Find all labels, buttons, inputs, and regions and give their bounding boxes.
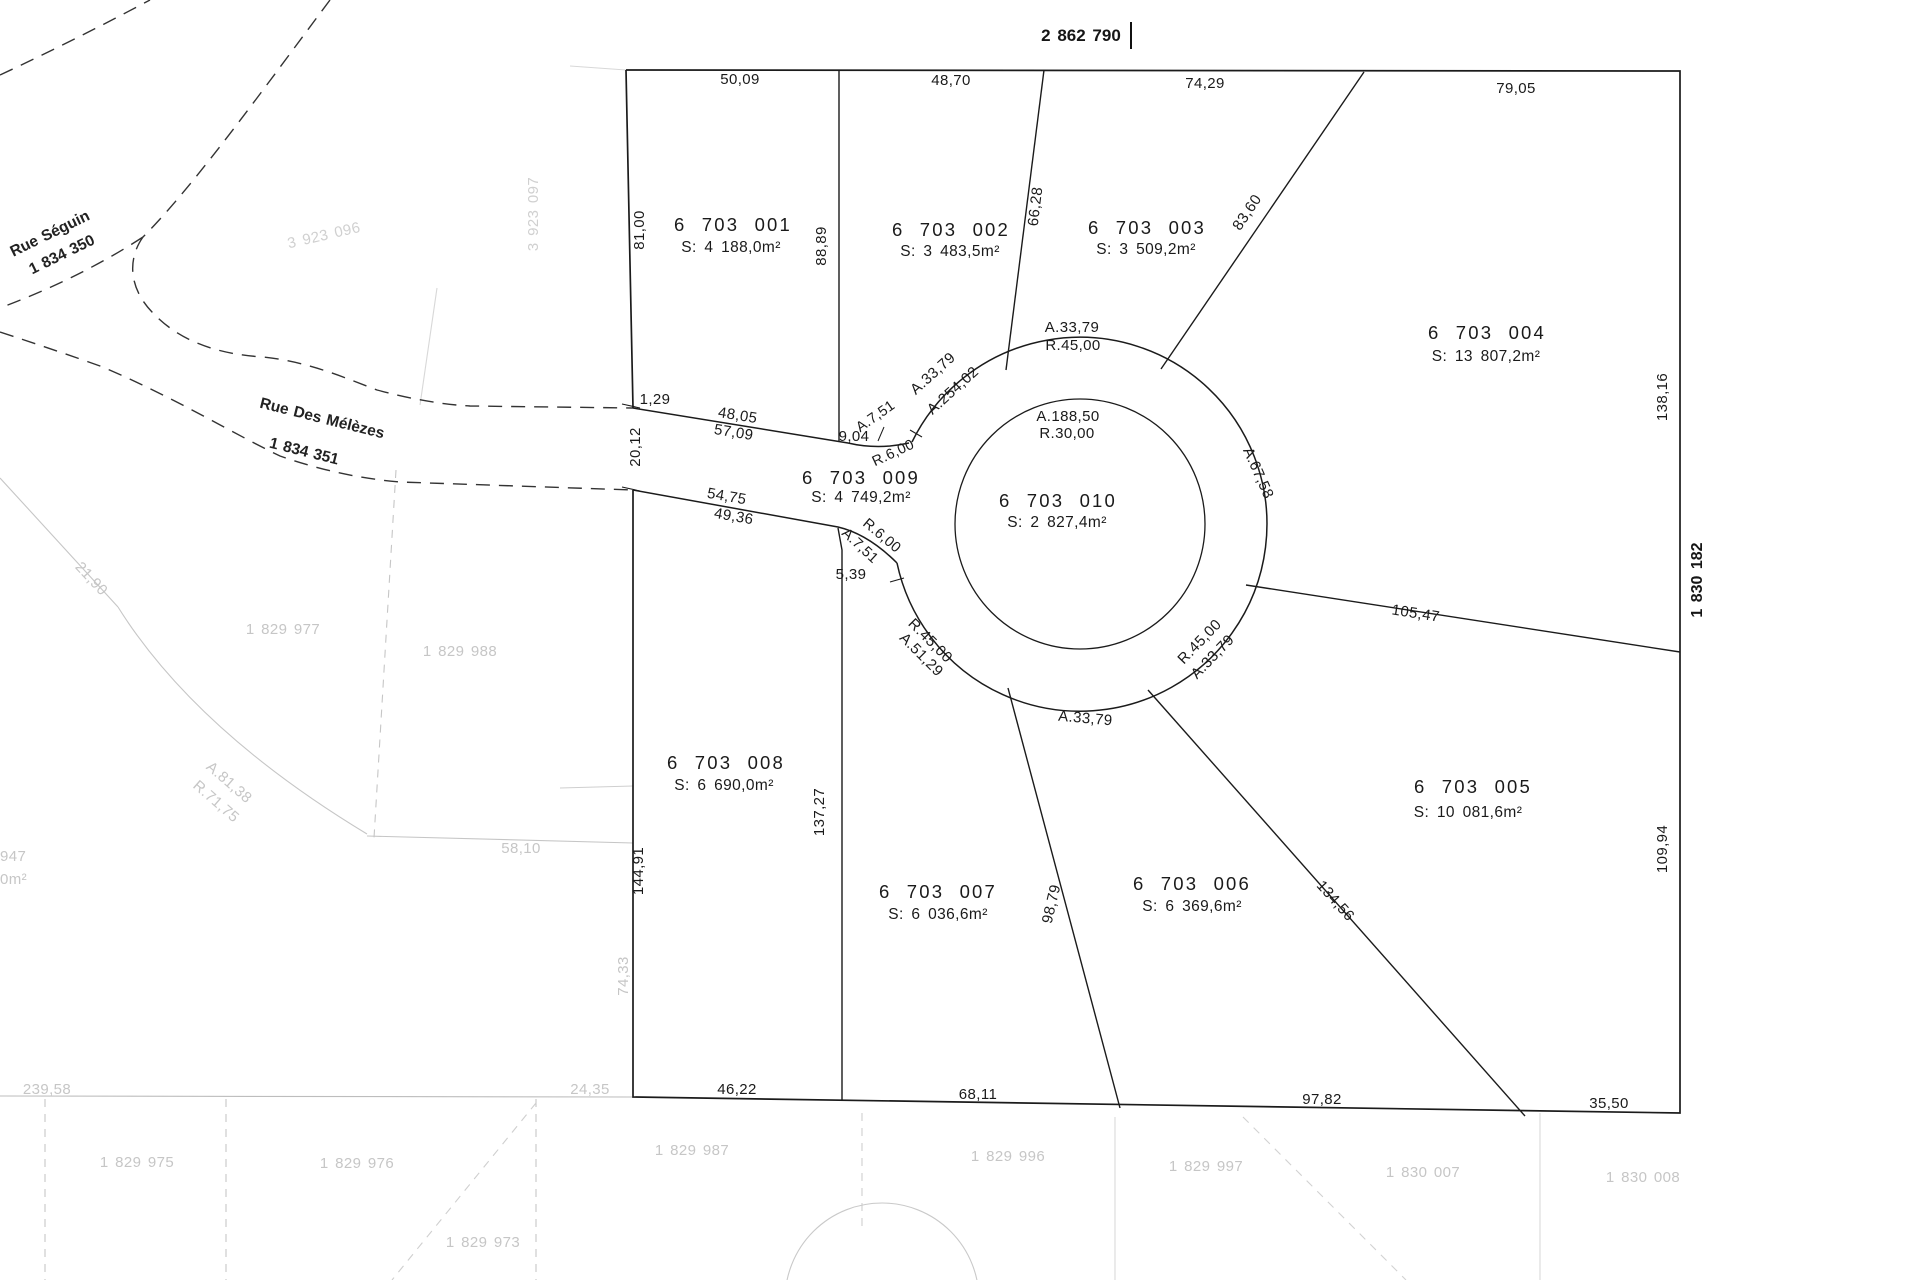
dim-right-10994: 109,94 xyxy=(1654,825,1671,873)
curve-a6758: A.67,58 xyxy=(1239,445,1277,502)
dim-top-2: 48,70 xyxy=(931,72,971,89)
lot-labels: 6 703 001 S: 4 188,0m² 6 703 002 S: 3 48… xyxy=(667,214,1546,923)
lot-009-id: 6 703 009 xyxy=(802,467,920,488)
dim-left-2012: 20,12 xyxy=(627,427,644,467)
dim-top-4: 79,05 xyxy=(1496,80,1536,97)
bg-dim-23958: 239,58 xyxy=(23,1081,71,1098)
dim-road-4936: 49,36 xyxy=(713,505,755,529)
lot-003-id: 6 703 003 xyxy=(1088,217,1206,238)
dim-top-1: 50,09 xyxy=(720,71,760,88)
dim-bottom-4: 35,50 xyxy=(1589,1095,1629,1112)
bg-parcel-3923096: 3 923 096 xyxy=(286,219,362,252)
bg-parcel-1829996: 1 829 996 xyxy=(971,1148,1045,1165)
rue-seguin-west-edge xyxy=(0,0,150,75)
dim-left-129: 1,29 xyxy=(640,391,671,408)
bg-parcel-area-partial: 0m² xyxy=(0,871,27,888)
bg-parcel-1829987: 1 829 987 xyxy=(655,1142,729,1159)
tick-upper-fillet xyxy=(910,430,922,437)
dim-div-9879: 98,79 xyxy=(1039,883,1064,925)
rue-melezes-north-edge xyxy=(133,237,633,408)
lot-002-area: S: 3 483,5m² xyxy=(900,243,1000,260)
lot-004-id: 6 703 004 xyxy=(1428,322,1546,343)
bg-parcel-3923097: 3 923 097 xyxy=(525,177,542,251)
lot-008-area: S: 6 690,0m² xyxy=(674,777,774,794)
lot-003-area: S: 3 509,2m² xyxy=(1096,241,1196,258)
survey-plan-canvas: 2 862 790 1 830 182 Rue Séguin 1 834 350… xyxy=(0,0,1920,1280)
grid-coordinate-top[interactable]: 2 862 790 xyxy=(1041,26,1121,45)
lot-006-id: 6 703 006 xyxy=(1133,873,1251,894)
lot-008-id: 6 703 008 xyxy=(667,752,785,773)
bg-parcel-1830008: 1 830 008 xyxy=(1606,1169,1680,1186)
dim-top-3: 74,29 xyxy=(1185,75,1225,92)
bg-parcel-1829973: 1 829 973 xyxy=(446,1234,520,1251)
lot-006-area: S: 6 369,6m² xyxy=(1142,898,1242,915)
lot-010-area: S: 2 827,4m² xyxy=(1007,514,1107,531)
dim-road-539: 5,39 xyxy=(836,566,867,583)
curve-a3379-bottom: A.33,79 xyxy=(1057,708,1113,730)
lot-010-id: 6 703 010 xyxy=(999,490,1117,511)
cadastral-plan-viewer: 2 862 790 1 830 182 Rue Séguin 1 834 350… xyxy=(0,0,1920,1280)
dim-bottom-1: 46,22 xyxy=(717,1081,757,1098)
curve-a751-upper: A.7,51 xyxy=(853,398,898,436)
bg-dim-5810: 58,10 xyxy=(501,840,541,857)
dim-div-8360: 83,60 xyxy=(1229,191,1265,233)
bg-parcel-1829988: 1 829 988 xyxy=(423,643,497,660)
bg-dim-2435: 24,35 xyxy=(570,1081,610,1098)
grid-coordinate-right: 1 830 182 xyxy=(1689,542,1706,617)
lot-005-area: S: 10 081,6m² xyxy=(1414,804,1523,821)
lot-001-id: 6 703 001 xyxy=(674,214,792,235)
dim-bottom-3: 97,82 xyxy=(1302,1091,1342,1108)
lot-005-id: 6 703 005 xyxy=(1414,776,1532,797)
curve-r3000: R.30,00 xyxy=(1039,425,1094,442)
lot-001-area: S: 4 188,0m² xyxy=(681,239,781,256)
bg-parcel-947-partial: 947 xyxy=(0,848,26,865)
rue-seguin-east-edge xyxy=(143,0,330,237)
bg-parcel-1830007: 1 830 007 xyxy=(1386,1164,1460,1181)
dim-right-13816: 138,16 xyxy=(1654,373,1671,421)
bg-parcel-1829997: 1 829 997 xyxy=(1169,1158,1243,1175)
lot-002-id: 6 703 002 xyxy=(892,219,1010,240)
divider-004-005 xyxy=(1246,585,1680,652)
text-cursor[interactable] xyxy=(1130,22,1132,49)
bg-parcel-1829976: 1 829 976 xyxy=(320,1155,394,1172)
dim-div-13727: 137,27 xyxy=(811,788,828,836)
dim-div-10547: 105,47 xyxy=(1391,601,1441,625)
lot-009-area: S: 4 749,2m² xyxy=(811,489,911,506)
bg-parcel-1829977: 1 829 977 xyxy=(246,621,320,638)
lot-007-area: S: 6 036,6m² xyxy=(888,906,988,923)
curve-r600-upper: R.6,00 xyxy=(870,437,917,470)
bg-parcel-1829975: 1 829 975 xyxy=(100,1154,174,1171)
dim-bottom-2: 68,11 xyxy=(959,1086,997,1103)
lot-007-id: 6 703 007 xyxy=(879,881,997,902)
divider-006-007 xyxy=(1008,688,1120,1108)
dim-div-8889: 88,89 xyxy=(813,226,830,266)
lot-004-area: S: 13 807,2m² xyxy=(1432,348,1541,365)
dim-div-13456: 134,56 xyxy=(1313,877,1358,924)
curve-a18850: A.188,50 xyxy=(1036,408,1099,425)
dim-left-14491: 144,91 xyxy=(630,847,647,895)
background-circle xyxy=(785,1203,979,1280)
bg-dim-7433: 74,33 xyxy=(615,956,632,996)
leader-a751 xyxy=(878,427,884,441)
dim-div-6628: 66,28 xyxy=(1025,186,1047,227)
bg-dim-2190: 21,90 xyxy=(72,559,111,600)
curve-r4500-top: R.45,00 xyxy=(1045,337,1100,354)
curve-a3379-top: A.33,79 xyxy=(1045,319,1100,336)
dim-left-81: 81,00 xyxy=(631,210,648,250)
divider-007-008 xyxy=(838,528,842,1100)
